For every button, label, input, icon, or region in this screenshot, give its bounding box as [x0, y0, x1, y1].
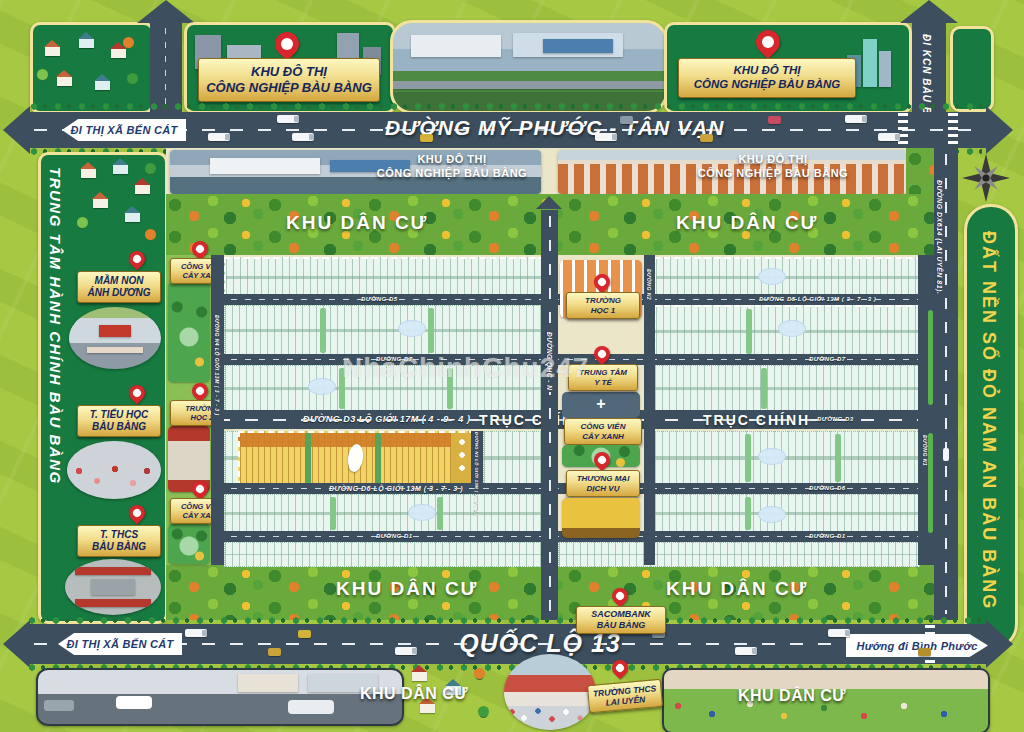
school1-label-line2: HỌC 1 [567, 306, 639, 316]
kindergarten-label: MẦM NON ÁNH DƯƠNG [77, 271, 161, 303]
car-icon [918, 648, 931, 656]
caption-line2: CÔNG NGHIỆP BÀU BÀNG [377, 167, 527, 179]
secondary-school-label: T. THCS BÀU BÀNG [77, 525, 161, 557]
road-n3: ĐƯỜNG N3 LỘ GIỚI 13M ( 3 - 7 - 3 ) [471, 431, 483, 483]
map-pin-icon [126, 382, 149, 405]
commerce-illustration [562, 498, 640, 538]
car-icon [395, 647, 417, 655]
compass-icon [962, 154, 1010, 202]
plot-block-badge [398, 320, 426, 337]
plot-block-badge [778, 320, 806, 337]
road-d5-full-label: ĐƯỜNG D5 LỘ GIỚI 13M ( 3 - 7 - 3 ) [759, 296, 876, 302]
plot-block [224, 305, 543, 356]
primary-school-label: T. TIỂU HỌC BÀU BÀNG [77, 405, 161, 437]
project-banner-text: ĐẤT NỀN SỔ ĐỎ NAM AN BÀU BÀNG [978, 231, 999, 631]
plot-block [224, 257, 545, 298]
caption-line1: KHU ĐÔ THỊ [417, 153, 486, 165]
direction-ben-cat-top-label: ĐI THỊ XÃ BẾN CÁT [70, 124, 177, 136]
road-d1-label: ĐƯỜNG D1 [376, 533, 413, 539]
residential-caption-right: KHU DÂN CƯ [724, 686, 860, 706]
residential-label: KHU DÂN CƯ [336, 578, 478, 600]
road-qhc: ĐƯỜNG QHC - N [541, 210, 558, 620]
industrial-park-photo [390, 20, 668, 114]
direction-ben-cat-bottom-label: ĐI THỊ XÃ BẾN CÁT [66, 638, 173, 650]
car-icon [268, 648, 281, 656]
map-pin-icon [126, 502, 149, 525]
car-icon [208, 133, 230, 141]
plot-block [224, 542, 543, 567]
plot-block [654, 494, 920, 533]
project-banner: ĐẤT NỀN SỔ ĐỎ NAM AN BÀU BÀNG [964, 204, 1018, 650]
road-end-arrow-left-icon [3, 106, 30, 154]
car-icon [828, 629, 850, 637]
car-icon [735, 647, 757, 655]
primary-school-label-line1: T. TIỂU HỌC [78, 409, 160, 421]
map-pin-icon [126, 248, 149, 271]
car-icon [878, 133, 900, 141]
road-dx614-label: ĐƯỜNG DX614 (LAI UYÊN 81). [936, 178, 943, 296]
residential-label: KHU DÂN CƯ [286, 212, 428, 234]
road-d3-label: ĐƯỜNG D3 [817, 416, 854, 422]
crosswalk [898, 113, 908, 147]
caption-line2: CÔNG NGHIỆP BÀU BÀNG [698, 167, 848, 179]
admin-center-panel: TRUNG TÂM HÀNH CHÍNH BÀU BÀNG MẦM NON ÁN… [38, 152, 168, 624]
commerce-label-line1: THƯƠNG MẠI [567, 474, 639, 484]
car-icon [845, 115, 867, 123]
commerce-label-line2: DỊCH VỤ [567, 484, 639, 494]
road-d6-label: ĐƯỜNG D6 [809, 485, 846, 491]
top-left-houses-panel [30, 22, 154, 114]
road-end-arrow-right-icon [986, 620, 1013, 668]
car-icon [768, 116, 781, 124]
real-estate-map-poster: KHU ĐÔ THỊ CÔNG NGHIỆP BÀU BÀNG KHU ĐÔ T… [0, 0, 1024, 732]
plot-block-badge [758, 268, 786, 285]
residential-label: KHU DÂN CƯ [666, 578, 808, 600]
plot-block [654, 257, 922, 298]
sacombank-label: SACOMBANK BÀU BÀNG [576, 606, 666, 634]
car-icon [185, 629, 207, 637]
arrow-up-icon [536, 196, 562, 209]
arrow-up-icon [900, 0, 958, 23]
road-n2-label: ĐƯỜNG N2 [646, 269, 652, 300]
residential-band-top [166, 194, 958, 255]
admin-center-title: TRUNG TÂM HÀNH CHÍNH BÀU BÀNG [47, 167, 64, 607]
industrial-zone-label-line1: KHU ĐÔ THỊ [679, 64, 855, 78]
secondary-school-photo [65, 559, 161, 615]
commerce-label: THƯƠNG MẠI DỊCH VỤ [566, 470, 640, 497]
car-icon [292, 133, 314, 141]
residential-label: KHU DÂN CƯ [676, 212, 818, 234]
plot-block-badge [308, 378, 336, 395]
industrial-photo-left-caption: KHU ĐÔ THỊ CÔNG NGHIỆP BÀU BÀNG [366, 153, 538, 181]
plot-block-badge [758, 448, 786, 465]
primary-school-label-line2: BÀU BÀNG [78, 421, 160, 433]
road-d3-full-label: ĐƯỜNG D3 LỘ GIỚI 17M ( 4 - 9 - 4 ) [303, 414, 470, 424]
road-n2: ĐƯỜNG N2 [644, 255, 655, 565]
car-icon [420, 134, 433, 142]
top-right-corner-panel [950, 26, 994, 112]
road-end-arrow-left-icon [3, 620, 30, 668]
main-axis-label: TRỤC CHÍNH [703, 412, 810, 428]
road-d5-label: ĐƯỜNG D5 [361, 296, 398, 302]
road-n1: ĐƯỜNG N1 [918, 255, 934, 565]
car-icon [595, 133, 617, 141]
park-label-line1: CÔNG VIÊN [565, 422, 641, 432]
park-illustration [168, 524, 210, 564]
master-plan-map: KHU ĐÔ THỊ CÔNG NGHIỆP BÀU BÀNG KHU ĐÔ T… [166, 148, 958, 620]
car-icon [620, 116, 633, 124]
caption-line1: KHU ĐÔ THỊ [738, 153, 807, 165]
kindergarten-photo [69, 307, 161, 369]
industrial-zone-label-line1: KHU ĐÔ THỊ [199, 64, 379, 80]
project-plot-block-highlight [238, 431, 475, 487]
direction-binh-phuoc: Hướng đi Bình Phước [846, 634, 988, 657]
secondary-school-label-line2: BÀU BÀNG [78, 541, 160, 553]
road-d6-full-label: ĐƯỜNG D6 LỘ GIỚI 13M ( 3 - 7 - 3 ) [329, 485, 463, 492]
plot-block-badge [408, 504, 436, 521]
sacombank-label-line2: BÀU BÀNG [577, 620, 665, 631]
kindergarten-label-line1: MẦM NON [78, 275, 160, 287]
primary-school-photo [67, 441, 161, 499]
direction-ben-cat-bottom: ĐI THỊ XÃ BẾN CÁT [58, 633, 182, 655]
road-end-arrow-right-icon [986, 106, 1013, 154]
arrow-up-icon [137, 0, 195, 23]
car-icon [700, 134, 713, 142]
residential-caption-left: KHU DÂN CƯ [346, 684, 482, 704]
medical-illustration [562, 392, 640, 418]
park-label-central: CÔNG VIÊN CÂY XANH [564, 418, 642, 445]
plot-block-badge [758, 506, 786, 523]
road-dx614: ĐƯỜNG DX614 (LAI UYÊN 81). [934, 148, 958, 620]
car-icon [277, 115, 299, 123]
watermark: NhaChinhChu247 [342, 352, 589, 384]
bush-row [30, 103, 982, 110]
thcs-school-photo [504, 654, 596, 730]
car-icon [298, 630, 311, 638]
plot-block [224, 494, 543, 533]
industrial-zone-label-right: KHU ĐÔ THỊ CÔNG NGHIỆP BÀU BÀNG [678, 58, 856, 98]
road-d1-label: ĐƯỜNG D1 [809, 533, 846, 539]
park-label-line2: CÂY XANH [565, 432, 641, 442]
secondary-school-label-line1: T. THCS [78, 529, 160, 541]
trees-filler [906, 148, 934, 194]
industrial-zone-label-line2: CÔNG NGHIỆP BÀU BÀNG [679, 78, 855, 92]
direction-ben-cat-top: ĐI THỊ XÃ BẾN CÁT [62, 119, 186, 141]
sacombank-label-line1: SACOMBANK [577, 609, 665, 620]
road-n4-label: ĐƯỜNG N4 LỘ GIỚI 13M ( 3 - 7 - 3 ) [214, 315, 220, 416]
industrial-zone-label-line2: CÔNG NGHIỆP BÀU BÀNG [199, 80, 379, 96]
plot-block [558, 542, 920, 567]
plot-block [654, 365, 920, 412]
top-left-vertical-road [150, 22, 182, 112]
crosswalk [948, 113, 958, 147]
thcs-school-label: TRƯỜNG THCS LAI UYÊN [587, 679, 663, 713]
road-d7-label: ĐƯỜNG D7 [809, 356, 846, 362]
kindergarten-label-line2: ÁNH DƯƠNG [78, 287, 160, 299]
industrial-zone-label-left: KHU ĐÔ THỊ CÔNG NGHIỆP BÀU BÀNG [198, 58, 380, 102]
direction-binh-phuoc-label: Hướng đi Bình Phước [856, 640, 977, 652]
road-n3-label: ĐƯỜNG N3 LỘ GIỚI 13M ( 3 - 7 - 3 ) [474, 432, 479, 516]
plot-block [654, 431, 920, 485]
school1-label-line1: TRƯỜNG [567, 296, 639, 306]
bush-row [28, 617, 984, 624]
industrial-photo-right-caption: KHU ĐÔ THỊ CÔNG NGHIỆP BÀU BÀNG [642, 153, 904, 181]
road-n4: ĐƯỜNG N4 LỘ GIỚI 13M ( 3 - 7 - 3 ) [211, 255, 224, 565]
school1-label: TRƯỜNG HỌC 1 [566, 292, 640, 319]
park-illustration [168, 282, 210, 382]
plot-block [483, 431, 543, 485]
